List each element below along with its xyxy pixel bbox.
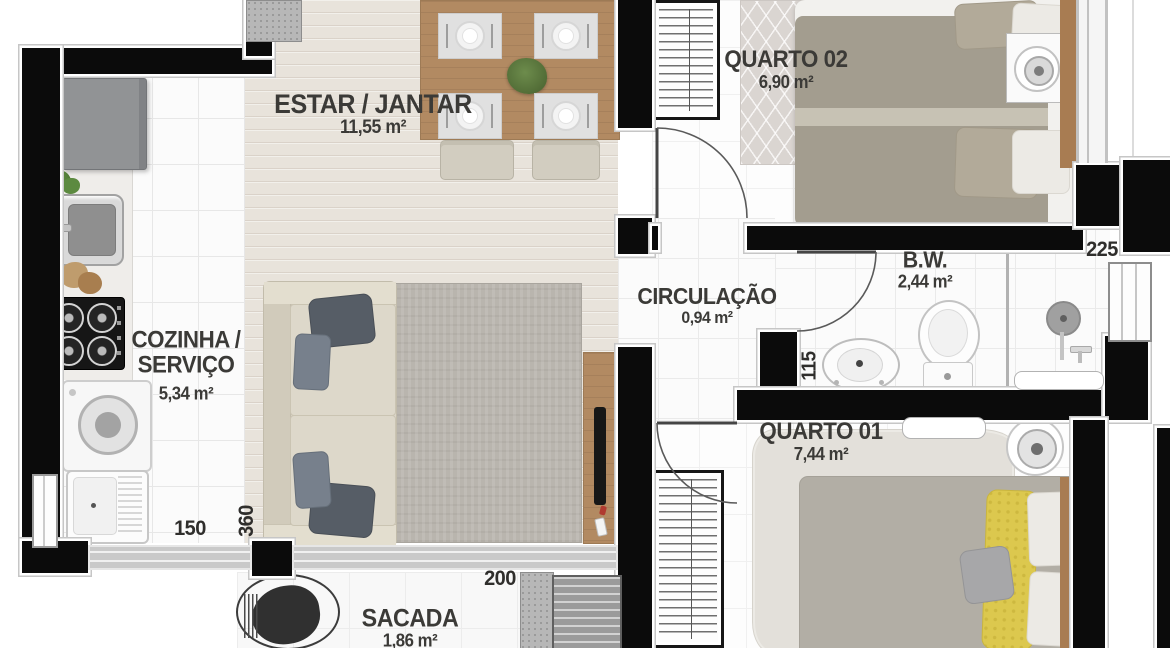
wardrobe-rails — [659, 479, 717, 639]
label-quarto02: QUARTO 02 6,90 m² — [724, 48, 847, 92]
room-name: B.W. — [898, 249, 952, 273]
room-area: 1,86 m² — [362, 632, 459, 648]
fan-outer — [1006, 418, 1064, 476]
table-centerpiece-plant — [507, 58, 547, 94]
quarto02-window — [1076, 0, 1108, 163]
shower-ledge — [1014, 371, 1104, 390]
duvet-fold — [795, 108, 1048, 126]
quarto02-window-sill — [1106, 0, 1134, 160]
room-area: 0,94 m² — [637, 309, 776, 327]
wall-edge-bottom-right — [1157, 428, 1170, 648]
toilet-seat — [928, 309, 968, 357]
wall-stub-circulation-top — [618, 218, 652, 254]
wardrobe-quarto01 — [652, 470, 724, 648]
shower-glass-partition — [1006, 250, 1009, 392]
sofa-pillow — [293, 333, 332, 391]
toilet — [918, 300, 982, 392]
washer-drum — [78, 395, 138, 455]
toilet-flush — [944, 373, 951, 380]
wall-stub-kitchen-sacada — [252, 541, 292, 576]
wall-living-quarto02 — [618, 0, 652, 128]
room-name: COZINHA / — [131, 329, 240, 354]
bed-quarto01 — [800, 477, 1076, 648]
decor-plate-inner — [1024, 56, 1054, 86]
living-rug — [372, 283, 582, 543]
dim-living-depth: 360 — [235, 505, 259, 537]
tv — [594, 407, 606, 505]
cutlery — [587, 104, 589, 128]
dim-sacada-width: 200 — [484, 567, 516, 591]
sink-handle — [879, 380, 884, 385]
room-area: 2,44 m² — [898, 273, 952, 292]
wall-bathroom-right — [1105, 336, 1148, 420]
room-area: 7,44 m² — [759, 445, 882, 464]
label-cozinha: COZINHA / SERVIÇO 5,34 m² — [131, 329, 240, 404]
sink-handle — [834, 380, 839, 385]
place-setting — [534, 93, 598, 139]
room-name: ESTAR / JANTAR — [274, 90, 472, 118]
pillow-gray — [958, 545, 1015, 605]
washer-dial — [69, 389, 76, 396]
laundry-tank — [66, 470, 149, 544]
wardrobe-rails — [659, 9, 713, 111]
dim-bathroom-length: 225 — [1086, 238, 1118, 262]
room-area: 6,90 m² — [724, 73, 847, 92]
cutlery — [542, 24, 544, 48]
cutlery — [446, 24, 448, 48]
label-estar-jantar: ESTAR / JANTAR 11,55 m² — [274, 90, 472, 138]
cooktop-knobs — [117, 306, 121, 362]
headboard-quarto02 — [1060, 0, 1076, 168]
nightstand-quarto02 — [1006, 33, 1066, 103]
concrete-pillar — [246, 0, 302, 42]
shower-stool — [1070, 346, 1090, 364]
balcony-sliding-door — [292, 545, 618, 570]
place-setting — [534, 13, 598, 59]
fan-center — [1031, 443, 1043, 455]
room-area: 11,55 m² — [274, 118, 472, 138]
sink-basin — [68, 204, 116, 256]
wall-below-q2-window — [1076, 165, 1123, 226]
wall-niche — [902, 417, 986, 439]
service-sliding-window — [88, 545, 252, 570]
wall-q2-door-jamb — [652, 226, 658, 250]
ac-louver-panel — [552, 575, 622, 648]
plate — [551, 21, 581, 51]
plate — [551, 101, 581, 131]
balcony-chair — [236, 572, 340, 648]
shower-head-center — [1060, 315, 1067, 322]
label-sacada: SACADA 1,86 m² — [362, 606, 459, 648]
label-circulacao: CIRCULAÇÃO 0,94 m² — [637, 285, 776, 327]
wardrobe-quarto02 — [652, 0, 720, 120]
cutlery — [542, 104, 544, 128]
cutlery — [587, 24, 589, 48]
washer-drum-center — [95, 412, 121, 438]
decor-plate — [1014, 46, 1060, 92]
room-name: SACADA — [362, 606, 459, 632]
shower-head-disc — [1046, 301, 1081, 336]
sofa — [263, 281, 397, 547]
fan-mid — [1017, 429, 1057, 469]
wall-bathroom-quarto01 — [737, 390, 1105, 420]
dim-service-width: 150 — [174, 517, 206, 541]
stool-leg — [1078, 351, 1082, 363]
floor-plan: ESTAR / JANTAR 11,55 m² COZINHA / SERVIÇ… — [0, 0, 1170, 648]
tank-drain — [91, 503, 96, 508]
fridge — [62, 78, 147, 170]
sofa-pillow — [292, 451, 332, 509]
chair-weave — [244, 594, 260, 638]
room-name: CIRCULAÇÃO — [637, 285, 776, 309]
label-bw: B.W. 2,44 m² — [898, 249, 952, 292]
concrete-strip-balcony — [520, 572, 554, 648]
sofa-backrest — [264, 304, 291, 524]
bathroom-sink — [822, 338, 900, 392]
burner — [87, 336, 117, 366]
dining-chair — [532, 140, 600, 180]
cutlery — [491, 104, 493, 128]
room-name: SERVIÇO — [131, 354, 240, 379]
plate — [455, 21, 485, 51]
bathroom-window — [1108, 262, 1152, 342]
room-name: QUARTO 01 — [759, 420, 882, 445]
cutlery — [491, 24, 493, 48]
decor-plate-center — [1034, 66, 1044, 76]
dim-bathroom-width: 115 — [799, 351, 822, 380]
wall-quarto01-right — [1073, 420, 1105, 648]
place-setting — [438, 13, 502, 59]
decor-dried-flowers — [78, 272, 102, 294]
kitchen-sink — [52, 194, 124, 266]
wall-corner-northeast — [1123, 160, 1170, 252]
dining-chair — [440, 140, 514, 180]
sink-faucet-dot — [856, 360, 863, 367]
tank-washboard — [118, 476, 142, 536]
wall-bathroom-stub — [760, 332, 797, 392]
room-area: 5,34 m² — [131, 385, 240, 404]
laundry-window — [32, 474, 58, 548]
room-name: QUARTO 02 — [724, 48, 847, 73]
label-quarto01: QUARTO 01 7,44 m² — [759, 420, 882, 464]
wall-living-quarto01 — [618, 347, 652, 648]
burner — [87, 303, 117, 333]
decor-fan-quarto01 — [1006, 418, 1064, 476]
shower-arm — [1060, 332, 1064, 360]
